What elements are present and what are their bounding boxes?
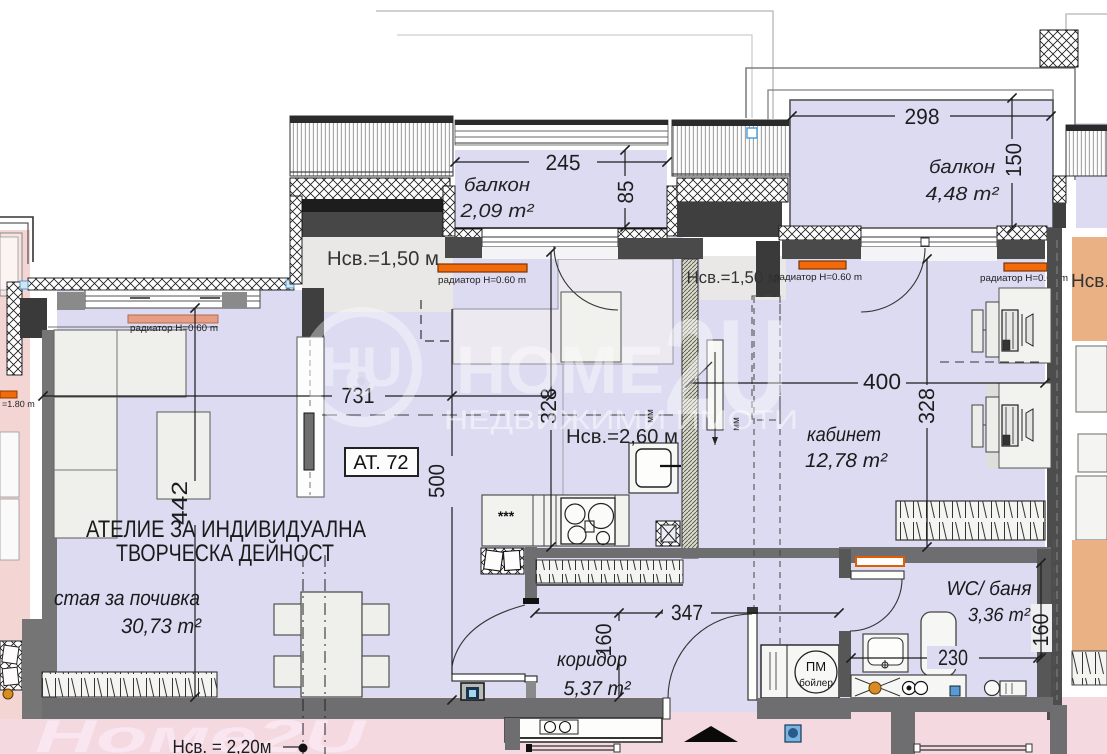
svg-text:30,73 m²: 30,73 m² bbox=[121, 615, 202, 638]
svg-text:балкон: балкон bbox=[929, 157, 996, 178]
svg-text:стая за почивка: стая за почивка bbox=[54, 587, 200, 610]
svg-text:85: 85 bbox=[613, 181, 638, 204]
svg-text:298: 298 bbox=[905, 104, 940, 129]
svg-text:радиатор H=0.60 m: радиатор H=0.60 m bbox=[438, 275, 526, 286]
svg-text:Нсв. = 2,20м: Нсв. = 2,20м bbox=[173, 737, 272, 754]
svg-text:245: 245 bbox=[546, 150, 581, 175]
svg-text:12,78 m²: 12,78 m² bbox=[805, 450, 888, 472]
svg-text:коридор: коридор bbox=[557, 649, 627, 671]
svg-text:328: 328 bbox=[914, 388, 939, 424]
svg-text:АТЕЛИЕ ЗА ИНДИВИДУАЛНА: АТЕЛИЕ ЗА ИНДИВИДУАЛНА bbox=[86, 516, 366, 543]
svg-text:Нсв.=: Нсв.= bbox=[1071, 271, 1107, 292]
svg-text:АТ. 72: АТ. 72 bbox=[353, 452, 408, 474]
svg-text:НЕДВИЖИМИ ИМОТИ: НЕДВИЖИМИ ИМОТИ bbox=[444, 405, 798, 435]
svg-text:ТВОРЧЕСКА ДЕЙНОСТ: ТВОРЧЕСКА ДЕЙНОСТ bbox=[116, 539, 334, 567]
svg-text:5,37 m²: 5,37 m² bbox=[564, 678, 632, 700]
svg-text:2,09 m²: 2,09 m² bbox=[459, 201, 534, 222]
svg-text:HU: HU bbox=[322, 335, 403, 398]
svg-text:160: 160 bbox=[1028, 614, 1053, 647]
svg-text:WC/ баня: WC/ баня bbox=[947, 578, 1032, 600]
svg-text:4,48 m²: 4,48 m² bbox=[926, 184, 1000, 205]
svg-text:HOME: HOME bbox=[456, 333, 664, 408]
svg-text:500: 500 bbox=[424, 464, 449, 498]
svg-text:Нсв.=1,50 м: Нсв.=1,50 м bbox=[327, 248, 439, 270]
svg-text:бойлер: бойлер bbox=[799, 678, 833, 689]
svg-text:230: 230 bbox=[938, 645, 968, 670]
svg-text:кабинет: кабинет bbox=[807, 424, 881, 446]
svg-text:=1.80 m: =1.80 m bbox=[2, 399, 35, 409]
svg-text:400: 400 bbox=[863, 369, 901, 394]
svg-text:***: *** bbox=[498, 508, 515, 524]
svg-text:радиатор H=0.60 m: радиатор H=0.60 m bbox=[130, 323, 218, 334]
svg-text:ПМ: ПМ bbox=[806, 659, 826, 674]
svg-text:Нсв.=1,50 м: Нсв.=1,50 м bbox=[687, 268, 780, 287]
svg-text:150: 150 bbox=[1001, 143, 1026, 177]
svg-text:балкон: балкон bbox=[464, 175, 531, 196]
svg-text:3,36 m²: 3,36 m² bbox=[968, 605, 1031, 626]
svg-text:радиатор H=0.60 m: радиатор H=0.60 m bbox=[774, 272, 862, 283]
svg-text:347: 347 bbox=[671, 600, 703, 625]
